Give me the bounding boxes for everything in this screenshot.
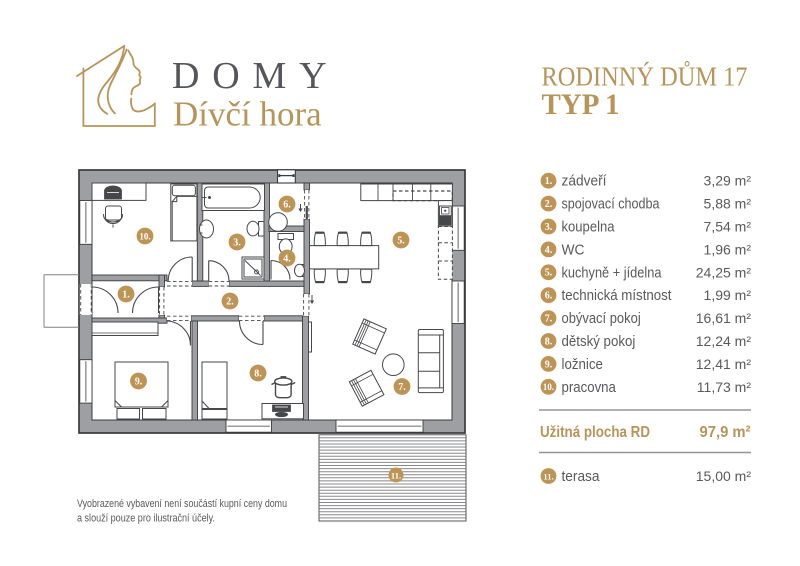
svg-text:16,61 m²: 16,61 m² bbox=[696, 310, 752, 326]
svg-text:terasa: terasa bbox=[562, 469, 601, 485]
svg-text:5.: 5. bbox=[397, 235, 405, 246]
svg-text:DOMY: DOMY bbox=[172, 55, 339, 97]
svg-text:5.: 5. bbox=[545, 268, 553, 279]
svg-text:11.: 11. bbox=[391, 470, 401, 480]
svg-text:dětský pokoj: dětský pokoj bbox=[562, 334, 636, 350]
svg-text:zádveří: zádveří bbox=[562, 174, 607, 190]
svg-text:10.: 10. bbox=[543, 382, 554, 392]
svg-text:spojovací chodba: spojovací chodba bbox=[562, 197, 661, 213]
svg-text:3.: 3. bbox=[545, 222, 553, 233]
svg-text:6.: 6. bbox=[283, 199, 291, 210]
svg-text:a slouží pouze pro ilustrační: a slouží pouze pro ilustrační účely. bbox=[77, 513, 215, 525]
svg-text:10.: 10. bbox=[139, 231, 150, 241]
svg-text:7.: 7. bbox=[545, 314, 553, 325]
svg-text:kuchyně + jídelna: kuchyně + jídelna bbox=[562, 265, 663, 281]
svg-text:Vyobrazené vybavení není součá: Vyobrazené vybavení není součástí kupní … bbox=[77, 498, 287, 510]
svg-text:15,00 m²: 15,00 m² bbox=[696, 468, 752, 484]
svg-text:Dívčí hora: Dívčí hora bbox=[173, 95, 322, 134]
svg-text:24,25 m²: 24,25 m² bbox=[696, 264, 752, 280]
svg-text:7.: 7. bbox=[398, 382, 406, 393]
svg-text:technická místnost: technická místnost bbox=[562, 288, 672, 304]
svg-text:3.: 3. bbox=[233, 237, 241, 248]
svg-text:2.: 2. bbox=[545, 199, 553, 210]
svg-text:1.: 1. bbox=[122, 289, 130, 300]
svg-text:obývací pokoj: obývací pokoj bbox=[562, 311, 641, 327]
svg-text:97,9 m²: 97,9 m² bbox=[700, 424, 751, 441]
svg-text:8.: 8. bbox=[254, 368, 262, 379]
svg-text:pracovna: pracovna bbox=[562, 380, 617, 396]
svg-text:1,96 m²: 1,96 m² bbox=[704, 241, 752, 257]
svg-text:9.: 9. bbox=[135, 376, 143, 387]
svg-text:WC: WC bbox=[562, 242, 585, 258]
svg-text:koupelna: koupelna bbox=[562, 220, 616, 236]
svg-text:7,54 m²: 7,54 m² bbox=[704, 219, 752, 235]
svg-text:12,24 m²: 12,24 m² bbox=[696, 333, 752, 349]
svg-text:5,88 m²: 5,88 m² bbox=[704, 196, 752, 212]
svg-text:1,99 m²: 1,99 m² bbox=[704, 287, 752, 303]
svg-text:12,41 m²: 12,41 m² bbox=[696, 356, 752, 372]
svg-text:TYP 1: TYP 1 bbox=[542, 88, 620, 121]
svg-text:4.: 4. bbox=[545, 245, 553, 256]
svg-text:RODINNÝ DŮM 17: RODINNÝ DŮM 17 bbox=[542, 61, 748, 92]
svg-text:4.: 4. bbox=[283, 253, 291, 264]
svg-text:9.: 9. bbox=[545, 359, 553, 370]
svg-text:6.: 6. bbox=[545, 291, 553, 302]
svg-text:1.: 1. bbox=[545, 176, 553, 187]
svg-text:Užitná plocha RD: Užitná plocha RD bbox=[540, 424, 650, 441]
svg-text:11,73 m²: 11,73 m² bbox=[697, 379, 752, 395]
svg-text:11.: 11. bbox=[543, 471, 553, 481]
svg-text:2.: 2. bbox=[226, 296, 234, 307]
svg-text:ložnice: ložnice bbox=[562, 357, 603, 373]
svg-text:3,29 m²: 3,29 m² bbox=[704, 173, 752, 189]
svg-text:8.: 8. bbox=[545, 336, 553, 347]
